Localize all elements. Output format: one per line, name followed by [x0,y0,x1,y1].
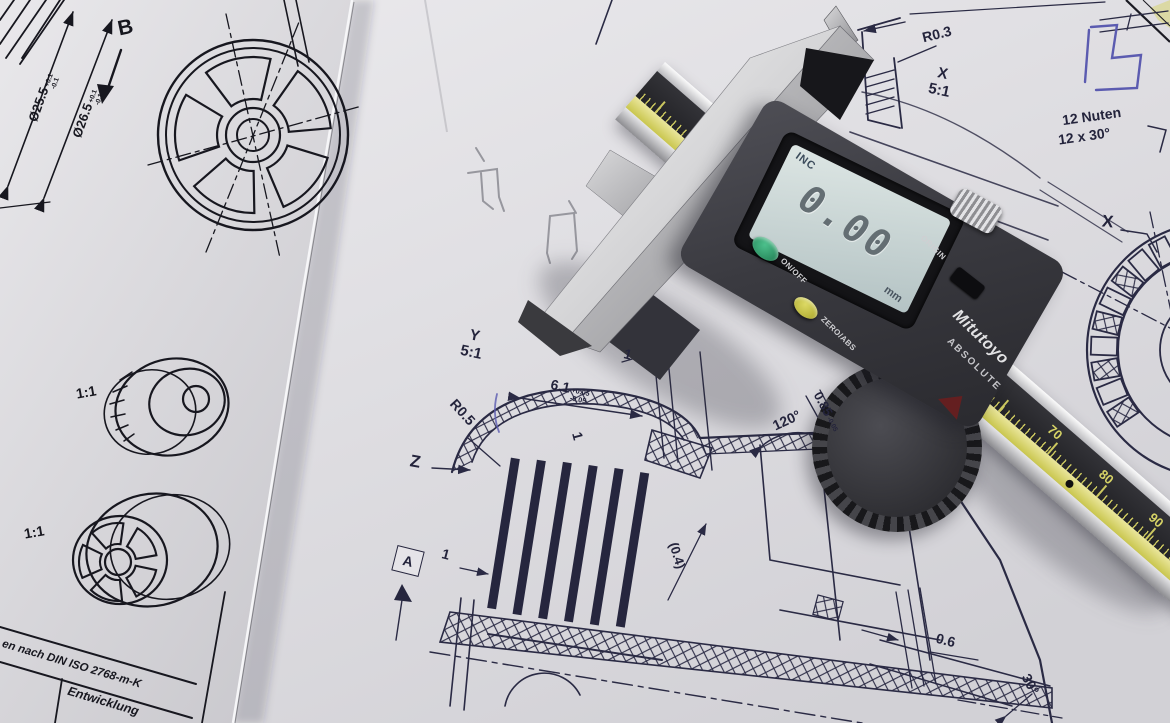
brand-logo-text: Mitutoyo [949,307,1012,369]
lcd-mode-indicator: INC [793,150,818,173]
origin-button[interactable] [949,266,986,300]
leader-label-x: X [1101,211,1114,232]
zero-abs-button[interactable] [790,293,822,323]
triangle-logo-icon [938,386,972,420]
lcd-measurement-value: 0.00 [788,177,903,268]
photo-scene: B Ø25.5+0.1-0.1 Ø26.5+0.1-0.1 1:1 1:1 en… [0,0,1170,723]
lcd-unit-label: mm [882,284,905,305]
